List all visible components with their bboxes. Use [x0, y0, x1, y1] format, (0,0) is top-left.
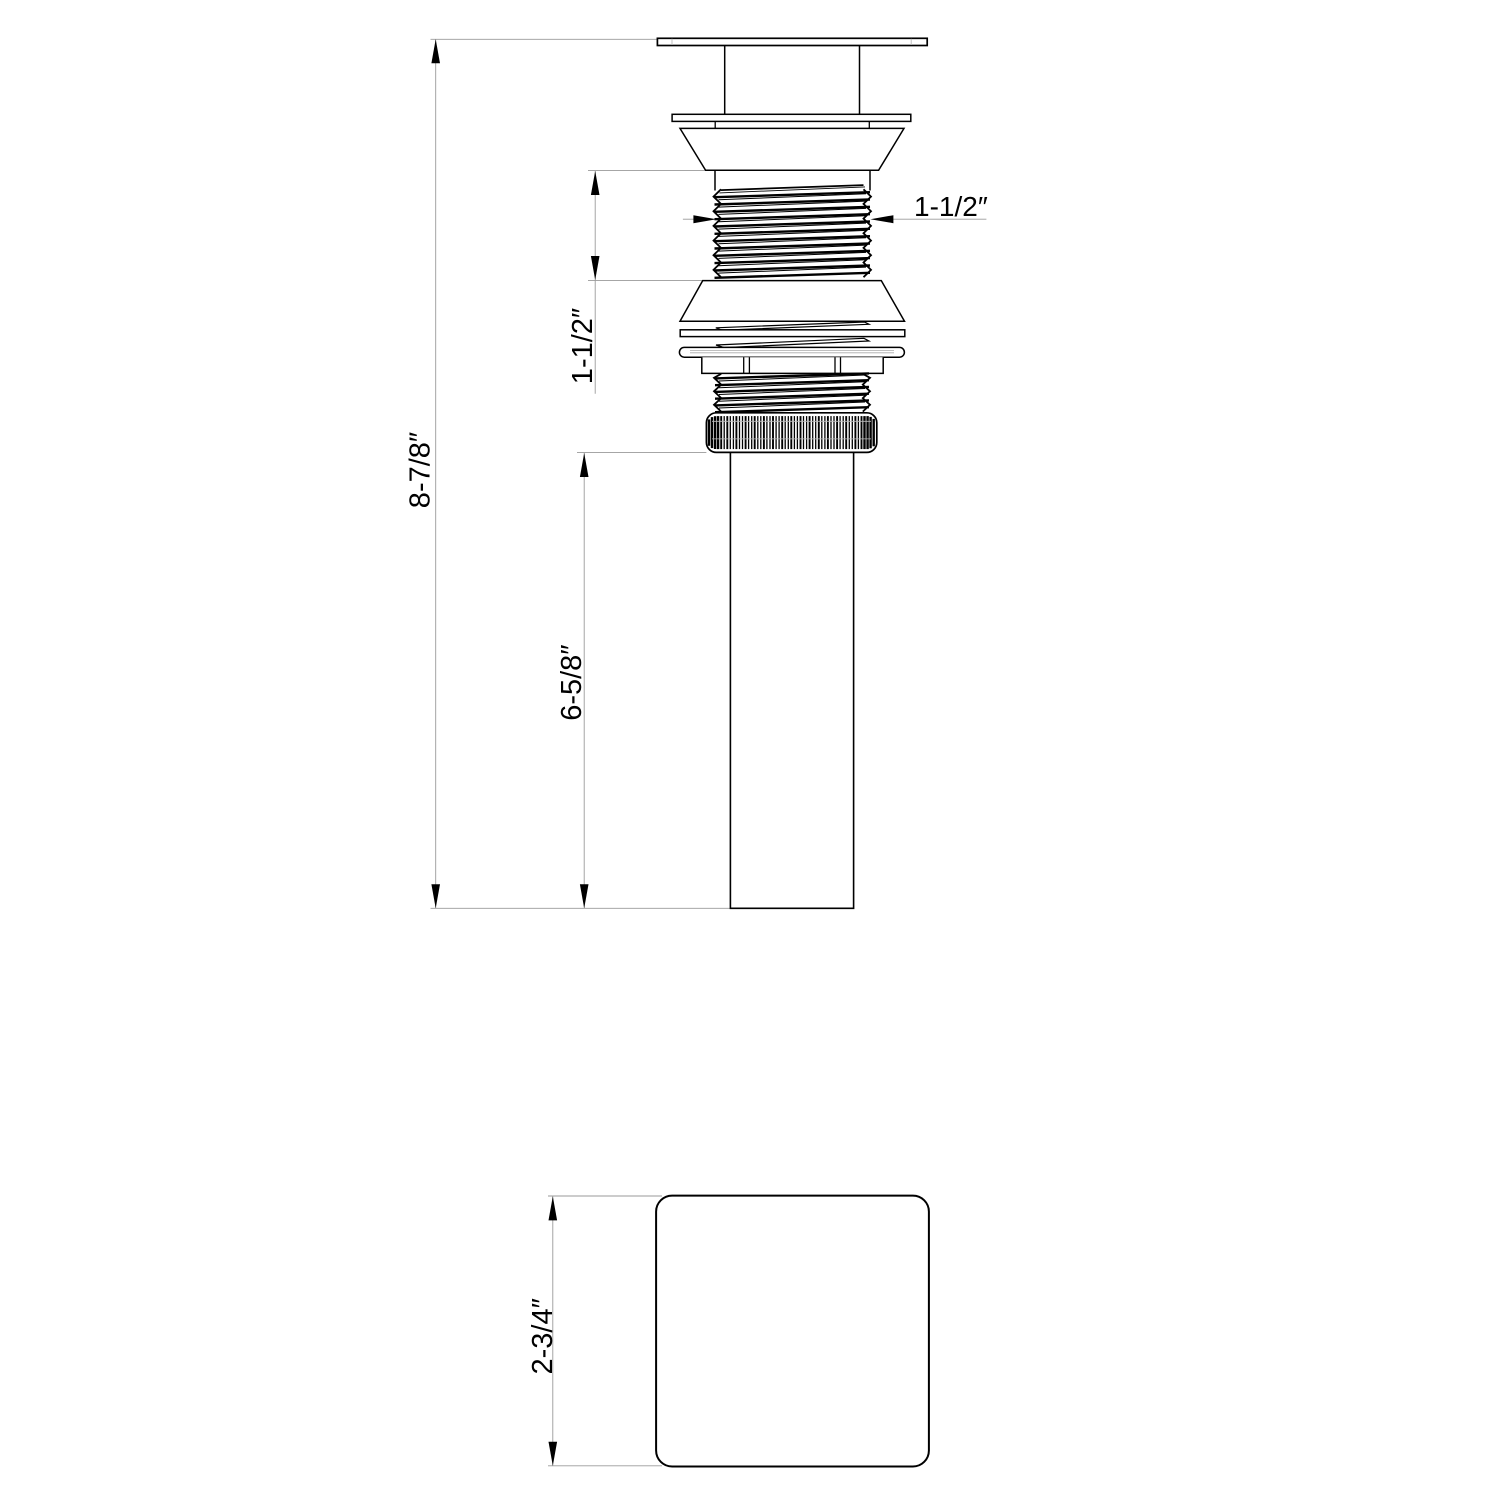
svg-text:8-7/8″: 8-7/8″	[405, 432, 437, 508]
svg-text:1-1/2″: 1-1/2″	[914, 191, 988, 222]
svg-text:2-3/4″: 2-3/4″	[527, 1298, 559, 1374]
svg-text:1-1/2″: 1-1/2″	[567, 308, 599, 384]
svg-text:6-5/8″: 6-5/8″	[556, 644, 588, 720]
